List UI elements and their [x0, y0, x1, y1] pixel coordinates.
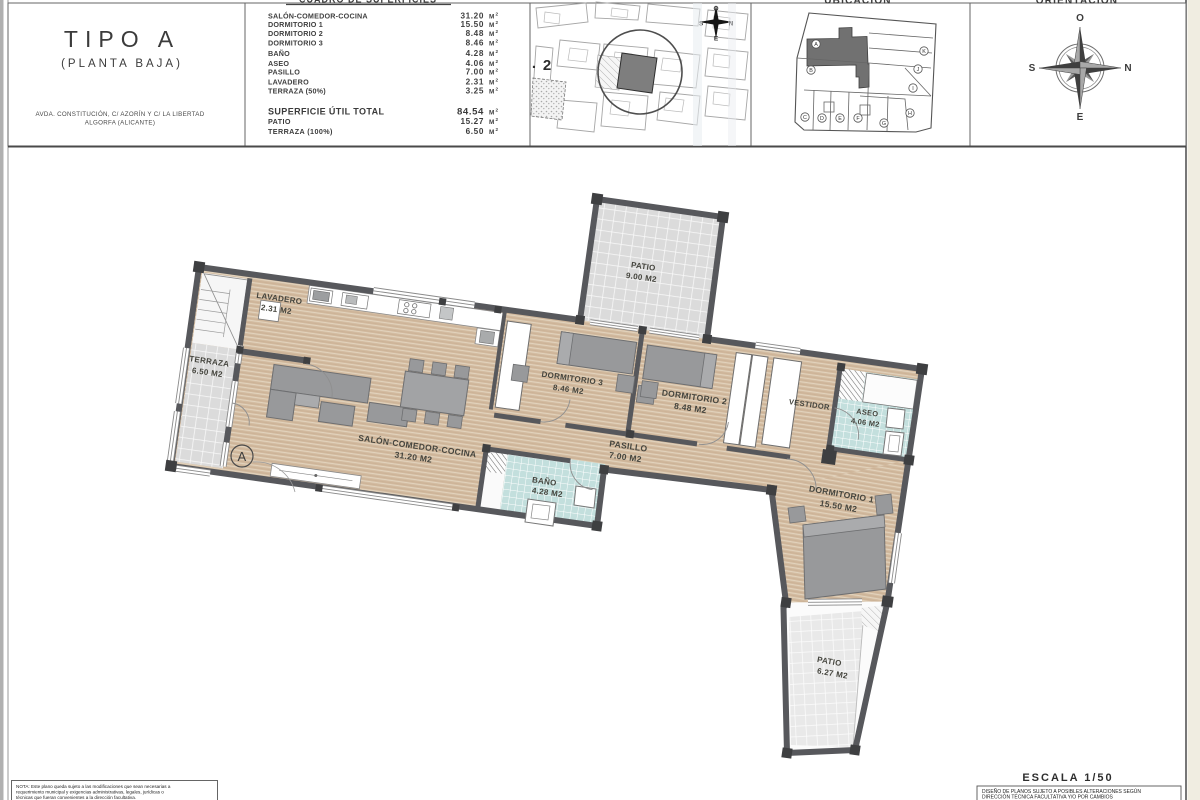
svg-text:N: N	[1124, 63, 1131, 74]
svg-text:TERRAZA (100%): TERRAZA (100%)	[268, 127, 333, 136]
svg-text:M: M	[489, 22, 495, 29]
svg-text:.: .	[532, 55, 536, 72]
svg-text:UBICACIÓN: UBICACIÓN	[824, 0, 891, 7]
svg-text:M: M	[489, 110, 495, 117]
svg-text:2: 2	[496, 117, 499, 122]
svg-text:TERRAZA (50%): TERRAZA (50%)	[268, 87, 326, 96]
svg-text:M: M	[489, 51, 495, 58]
svg-text:2: 2	[496, 39, 499, 44]
svg-text:E: E	[838, 116, 842, 122]
svg-text:G: G	[882, 121, 886, 127]
svg-text:2: 2	[496, 68, 499, 73]
svg-text:AVDA. CONSTITUCIÓN, C/ AZORÍN: AVDA. CONSTITUCIÓN, C/ AZORÍN Y C/ LA LI…	[36, 111, 205, 118]
svg-text:J: J	[917, 67, 920, 73]
svg-text:requerimiento municipal y exig: requerimiento municipal y exigencias adm…	[16, 790, 164, 795]
svg-text:ESCALA 1/50: ESCALA 1/50	[1022, 772, 1113, 784]
svg-text:K: K	[922, 49, 926, 55]
svg-text:M: M	[489, 129, 495, 136]
svg-text:M: M	[489, 61, 495, 68]
svg-text:ALGORFA (ALICANTE): ALGORFA (ALICANTE)	[85, 120, 155, 127]
svg-text:(PLANTA BAJA): (PLANTA BAJA)	[61, 58, 183, 70]
svg-text:2: 2	[496, 77, 499, 82]
svg-text:A: A	[238, 449, 247, 464]
svg-text:DIRECCIÓN TÉCNICA FACULTATIVA: DIRECCIÓN TÉCNICA FACULTATIVA Y/O POR CA…	[982, 794, 1114, 800]
svg-text:M: M	[489, 79, 495, 86]
svg-text:2: 2	[496, 29, 499, 34]
svg-text:3.25: 3.25	[466, 87, 484, 96]
svg-text:A: A	[814, 42, 818, 48]
svg-text:4.28: 4.28	[466, 49, 484, 58]
svg-text:2.31: 2.31	[466, 77, 484, 86]
svg-text:2: 2	[496, 59, 499, 64]
svg-text:LAVADERO: LAVADERO	[268, 77, 309, 86]
svg-text:C: C	[803, 115, 807, 121]
svg-text:O: O	[1076, 13, 1084, 24]
svg-text:M: M	[489, 70, 495, 77]
svg-text:TIPO A: TIPO A	[64, 26, 180, 52]
svg-text:2: 2	[496, 12, 499, 17]
svg-text:H: H	[908, 111, 912, 117]
svg-text:E: E	[714, 36, 719, 43]
svg-text:8.48: 8.48	[466, 29, 484, 38]
svg-text:D: D	[820, 116, 824, 122]
svg-text:NOTA: Este plano queda sujeto: NOTA: Este plano queda sujeto a las modi…	[16, 784, 171, 789]
svg-text:S: S	[1029, 63, 1036, 74]
svg-text:CUADRO DE SUPERFICIES: CUADRO DE SUPERFICIES	[299, 0, 437, 5]
svg-text:2: 2	[496, 108, 499, 113]
svg-text:DORMITORIO 1: DORMITORIO 1	[268, 20, 323, 29]
svg-text:PASILLO: PASILLO	[268, 68, 300, 77]
svg-text:M: M	[489, 41, 495, 48]
svg-text:8.46: 8.46	[466, 39, 484, 48]
svg-text:M: M	[489, 31, 495, 38]
svg-text:15.27: 15.27	[461, 117, 485, 126]
svg-text:7.00: 7.00	[466, 68, 484, 77]
svg-text:O: O	[713, 6, 718, 13]
svg-text:B: B	[809, 68, 813, 74]
svg-text:4.06: 4.06	[466, 59, 484, 68]
svg-text:2: 2	[496, 87, 499, 92]
svg-text:DORMITORIO 3: DORMITORIO 3	[268, 39, 323, 48]
svg-text:técnicas que fueran convenient: técnicas que fueran convenientes a la di…	[16, 795, 136, 800]
svg-text:M: M	[489, 119, 495, 126]
svg-text:E: E	[1077, 112, 1084, 123]
svg-text:M: M	[489, 89, 495, 96]
svg-text:BAÑO: BAÑO	[268, 49, 290, 58]
svg-text:6.50: 6.50	[466, 127, 484, 136]
svg-text:PATIO: PATIO	[268, 117, 291, 126]
svg-text:ORIENTACIÓN: ORIENTACIÓN	[1036, 0, 1118, 7]
svg-text:2: 2	[543, 57, 551, 74]
svg-text:2: 2	[496, 49, 499, 54]
svg-text:2: 2	[496, 20, 499, 25]
svg-text:SUPERFICIE ÚTIL TOTAL: SUPERFICIE ÚTIL TOTAL	[268, 106, 385, 117]
svg-text:84.54: 84.54	[457, 107, 484, 118]
svg-text:I: I	[912, 86, 914, 92]
svg-text:2: 2	[496, 127, 499, 132]
svg-text:DORMITORIO 2: DORMITORIO 2	[268, 29, 323, 38]
svg-text:M: M	[489, 14, 495, 21]
svg-text:ASEO: ASEO	[268, 59, 289, 68]
svg-text:15.50: 15.50	[461, 20, 485, 29]
